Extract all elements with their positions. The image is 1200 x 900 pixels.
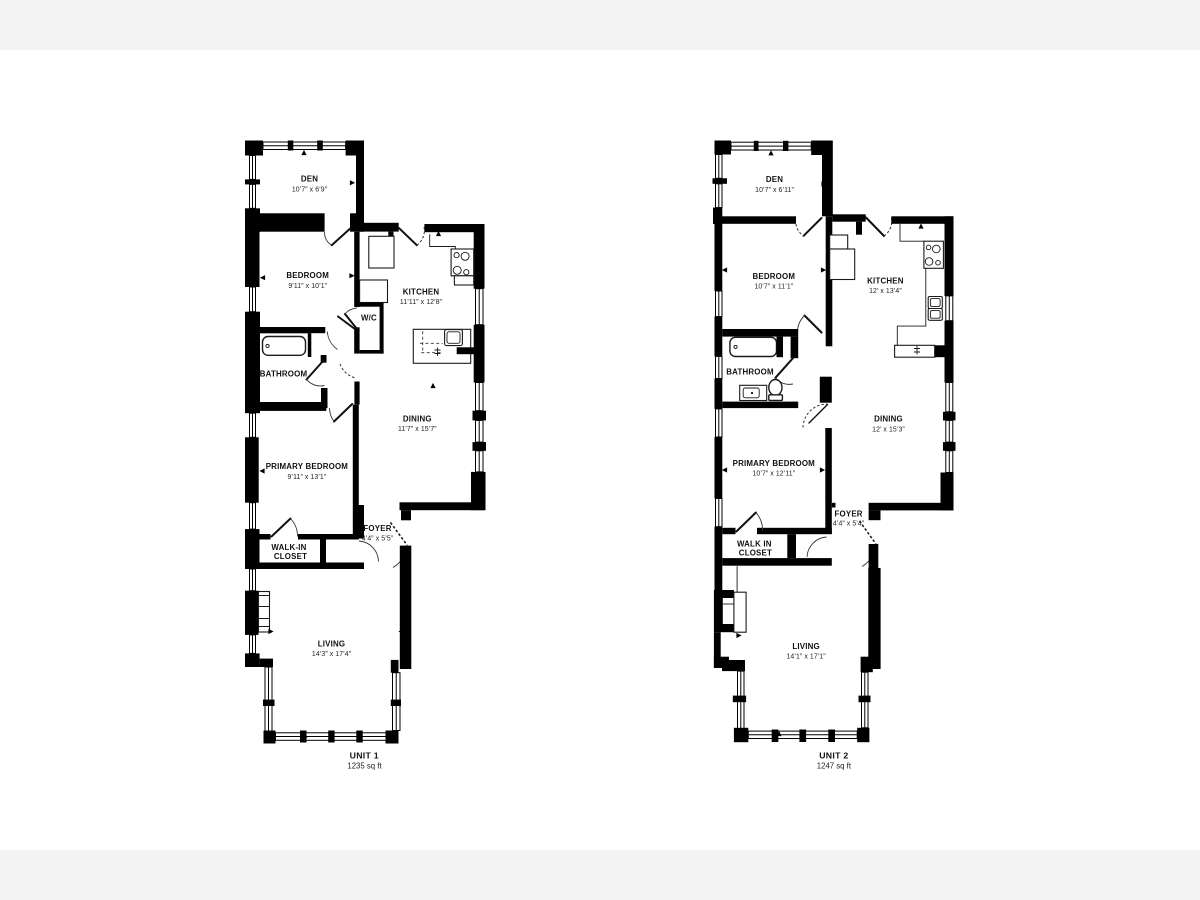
svg-text:1235 sq ft: 1235 sq ft (347, 762, 382, 771)
svg-text:UNIT 1: UNIT 1 (350, 751, 379, 761)
svg-text:WALK IN: WALK IN (737, 540, 772, 549)
svg-text:12’ x 13’4”: 12’ x 13’4” (869, 288, 902, 295)
svg-text:DINING: DINING (403, 415, 432, 424)
svg-text:BATHROOM: BATHROOM (726, 368, 774, 377)
svg-text:DEN: DEN (301, 175, 318, 184)
svg-text:FOYER: FOYER (835, 510, 863, 519)
svg-text:DINING: DINING (874, 415, 903, 424)
svg-text:WALK-IN: WALK-IN (271, 543, 306, 552)
svg-text:W/C: W/C (361, 314, 377, 323)
svg-text:BEDROOM: BEDROOM (752, 272, 795, 281)
svg-text:11’7” x 15’7”: 11’7” x 15’7” (398, 426, 437, 433)
svg-text:LIVING: LIVING (792, 642, 820, 651)
svg-text:BEDROOM: BEDROOM (286, 271, 329, 280)
svg-text:UNIT 2: UNIT 2 (819, 751, 848, 761)
svg-text:11’11” x 12’8”: 11’11” x 12’8” (400, 299, 443, 306)
svg-text:1247 sq ft: 1247 sq ft (817, 762, 852, 771)
svg-text:KITCHEN: KITCHEN (867, 277, 904, 286)
svg-text:CLOSET: CLOSET (274, 552, 307, 561)
svg-text:CLOSET: CLOSET (739, 549, 772, 558)
svg-text:LIVING: LIVING (318, 640, 346, 649)
svg-text:4’4” x 5’4”: 4’4” x 5’4” (833, 521, 865, 528)
svg-text:PRIMARY BEDROOM: PRIMARY BEDROOM (733, 459, 816, 468)
svg-text:10’7” x 6’9”: 10’7” x 6’9” (292, 187, 328, 194)
svg-text:9’11” x 10’1”: 9’11” x 10’1” (288, 283, 327, 290)
svg-text:14’3” x 17’4”: 14’3” x 17’4” (312, 651, 352, 658)
svg-text:10’7” x 12’11”: 10’7” x 12’11” (752, 471, 795, 478)
svg-text:4’4” x 5’5”: 4’4” x 5’5” (362, 536, 394, 543)
svg-text:BATHROOM: BATHROOM (260, 370, 308, 379)
svg-text:14’1” x 17’1”: 14’1” x 17’1” (786, 654, 826, 661)
svg-text:10’7” x 6’11”: 10’7” x 6’11” (755, 187, 794, 194)
svg-text:12’ x 15’3”: 12’ x 15’3” (872, 427, 905, 434)
svg-text:FOYER: FOYER (363, 524, 391, 533)
svg-text:PRIMARY BEDROOM: PRIMARY BEDROOM (266, 462, 349, 471)
svg-text:10’7” x 11’1”: 10’7” x 11’1” (754, 284, 793, 291)
svg-text:DEN: DEN (766, 175, 783, 184)
svg-text:9’11” x 13’1”: 9’11” x 13’1” (288, 474, 327, 481)
svg-text:KITCHEN: KITCHEN (403, 288, 440, 297)
